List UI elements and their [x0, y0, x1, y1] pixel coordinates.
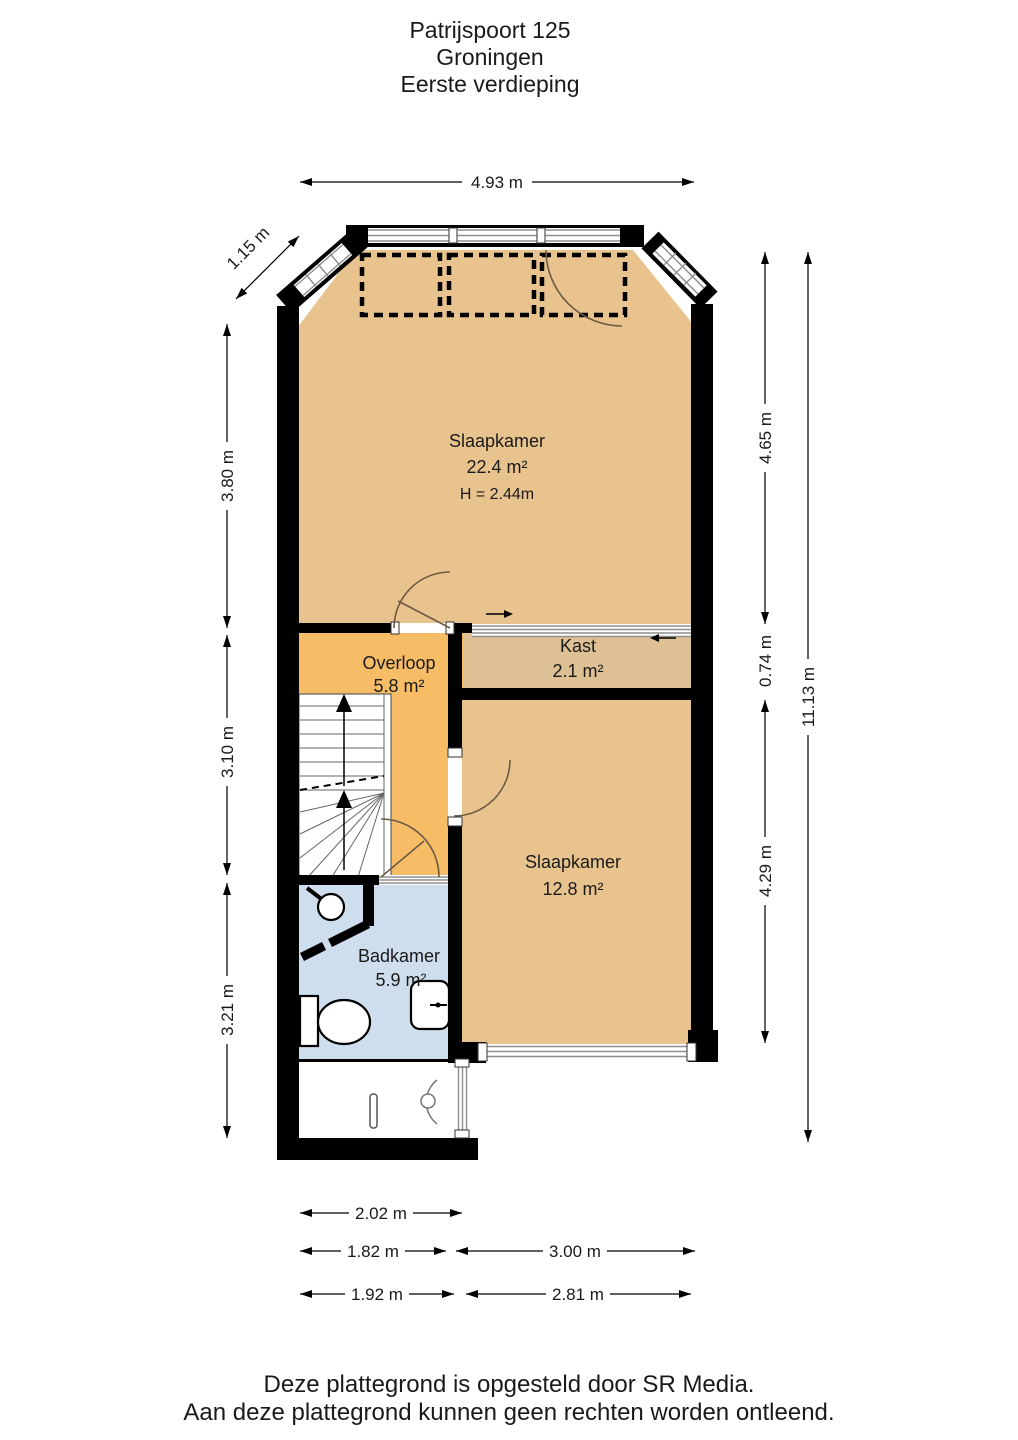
floorplan-page: Patrijspoort 125 Groningen Eerste verdie… [0, 0, 1018, 1440]
slaapkamer1-height: H = 2.44m [460, 486, 534, 503]
dimension-left-3: 3.21 m [217, 883, 237, 1138]
title-city: Groningen [436, 44, 543, 70]
dimension-left-2: 3.10 m [217, 635, 237, 875]
toilet-icon [300, 996, 370, 1046]
wall-right-exterior [691, 304, 713, 1062]
slaapkamer1-area: 22.4 m² [466, 457, 527, 477]
dim-diagonal-label: 1.15 m [223, 223, 273, 273]
slaapkamer2-area: 12.8 m² [542, 879, 603, 899]
wall-kast-bottom [448, 688, 695, 700]
room-slaapkamer-2-floor [458, 696, 701, 1050]
kast-area: 2.1 m² [552, 661, 603, 681]
dimension-bottom-row3-right: 2.81 m [466, 1283, 691, 1304]
dim-bottom-3a-label: 1.92 m [351, 1285, 403, 1304]
balcony-marks [370, 1080, 437, 1128]
dimension-right-inner-3: 4.29 m [755, 700, 775, 1043]
door-opening-bedroom1 [391, 622, 454, 634]
dim-bottom-1-label: 2.02 m [355, 1204, 407, 1223]
overloop-area: 5.8 m² [373, 676, 424, 696]
balcony-handle [370, 1094, 377, 1128]
dim-right-1-label: 4.65 m [756, 412, 775, 464]
dimension-bottom-row2-right: 3.00 m [456, 1240, 695, 1261]
dim-right-total-label: 11.13 m [799, 667, 818, 727]
dimension-top-width: 4.93 m [300, 171, 694, 192]
dimension-right-total: 11.13 m [798, 252, 818, 1142]
dim-bottom-2a-label: 1.82 m [347, 1242, 399, 1261]
room-fills [294, 250, 701, 1062]
overloop-name: Overloop [362, 653, 435, 673]
dim-right-2-label: 0.74 m [756, 635, 775, 687]
dimension-bottom-row3-left: 1.92 m [300, 1283, 454, 1304]
badkamer-name: Badkamer [358, 946, 440, 966]
dim-left-1-label: 3.80 m [218, 450, 237, 502]
door-sill-bathroom [379, 875, 448, 885]
wall-shower-stub [363, 880, 374, 926]
dimension-left-1: 3.80 m [217, 324, 237, 628]
title-floor: Eerste verdieping [401, 71, 580, 97]
slaapkamer2-name: Slaapkamer [525, 852, 621, 872]
window-top-dormer [368, 228, 620, 243]
dimension-bottom-row1: 2.02 m [300, 1202, 462, 1223]
staircase [299, 694, 391, 878]
wall-bathroom-bottom-line [299, 1059, 454, 1062]
badkamer-area: 5.9 m² [375, 970, 426, 990]
dim-bottom-2b-label: 3.00 m [549, 1242, 601, 1261]
wall-bottom-exterior [277, 1138, 478, 1160]
dim-bottom-3b-label: 2.81 m [552, 1285, 604, 1304]
title-address: Patrijspoort 125 [409, 17, 570, 43]
footer-line-2: Aan deze plattegrond kunnen geen rechten… [183, 1399, 834, 1426]
wall-left-exterior [277, 306, 299, 1160]
plan-title: Patrijspoort 125 Groningen Eerste verdie… [401, 17, 580, 97]
wall-bedroom1-landing [299, 623, 394, 633]
dimension-right-inner-1: 4.65 m [755, 252, 775, 624]
dim-left-3-label: 3.21 m [218, 984, 237, 1036]
stair-outline [299, 694, 391, 878]
dimension-right-inner-2: 0.74 m [755, 627, 775, 695]
window-balcony-right [455, 1059, 469, 1138]
kast-name: Kast [560, 636, 596, 656]
balcony-knob [421, 1094, 435, 1108]
window-bedroom2-bottom [478, 1043, 696, 1061]
footer-line-1: Deze plattegrond is opgesteld door SR Me… [264, 1371, 755, 1398]
dimension-bottom-row2-left: 1.82 m [300, 1240, 446, 1261]
plan-footer: Deze plattegrond is opgesteld door SR Me… [183, 1371, 834, 1426]
dim-top-width-label: 4.93 m [471, 173, 523, 192]
floorplan-drawing: Patrijspoort 125 Groningen Eerste verdie… [0, 0, 1018, 1440]
door-opening-bedroom2 [448, 748, 462, 826]
dim-left-2-label: 3.10 m [218, 726, 237, 778]
wall-landing-right-lower [448, 823, 462, 883]
dim-right-3-label: 4.29 m [756, 845, 775, 897]
slaapkamer1-name: Slaapkamer [449, 431, 545, 451]
